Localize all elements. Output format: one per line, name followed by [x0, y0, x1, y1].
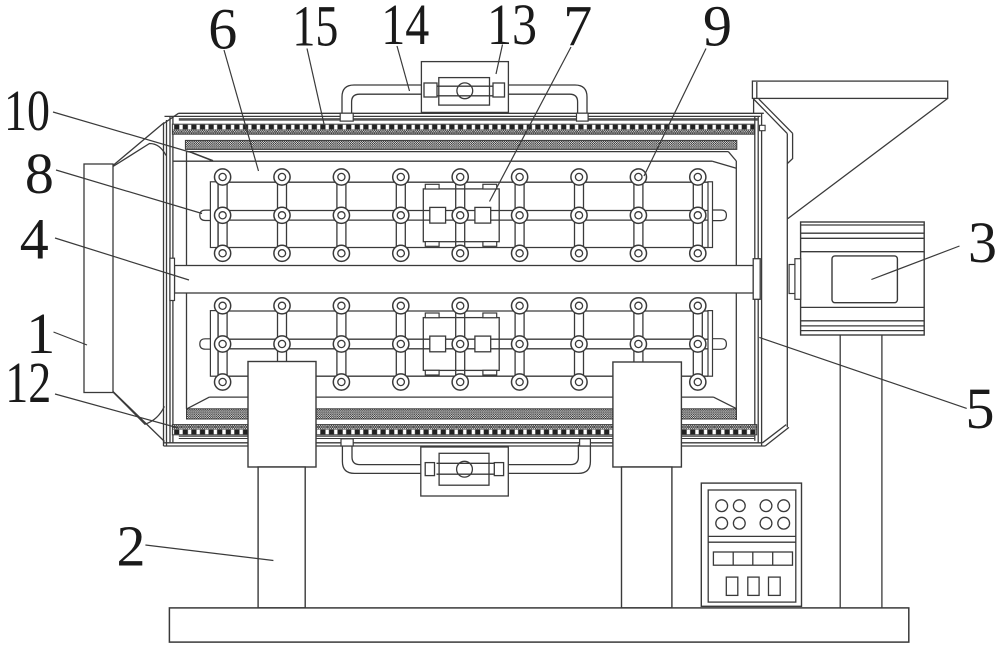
svg-text:15: 15 [292, 0, 338, 59]
svg-text:14: 14 [381, 0, 429, 57]
svg-text:10: 10 [4, 78, 50, 143]
svg-text:2: 2 [117, 514, 146, 579]
svg-text:6: 6 [208, 0, 237, 62]
svg-text:5: 5 [966, 376, 995, 441]
svg-text:4: 4 [20, 207, 49, 272]
svg-text:12: 12 [5, 350, 51, 415]
svg-text:3: 3 [968, 210, 997, 275]
svg-text:13: 13 [487, 0, 537, 57]
svg-text:8: 8 [25, 141, 54, 206]
svg-text:9: 9 [703, 0, 732, 59]
svg-text:7: 7 [563, 0, 592, 59]
